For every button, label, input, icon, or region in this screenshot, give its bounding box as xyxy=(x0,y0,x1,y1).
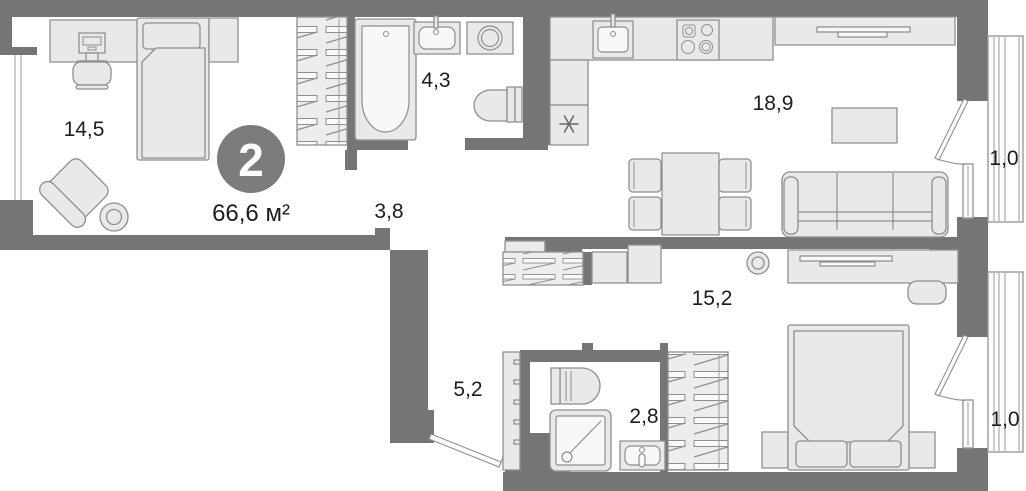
bathroom-sink-icon xyxy=(414,16,460,54)
kitchen-counter xyxy=(550,17,773,145)
desk-chair-icon xyxy=(73,62,111,89)
rooms-count: 2 xyxy=(238,134,264,186)
tv-stand-icon xyxy=(775,17,955,45)
desk-icon xyxy=(50,20,138,64)
toilet-1-icon xyxy=(474,87,522,122)
room-label-shower-room: 2,8 xyxy=(629,405,658,428)
floor-plan-canvas: 14,5 4,3 3,8 18,9 1,0 15,2 5,2 2,8 1,0 2… xyxy=(0,0,1026,491)
wardrobe-3-icon xyxy=(668,352,728,470)
stove-icon xyxy=(677,20,719,60)
shower-icon xyxy=(550,410,611,471)
room-label-kitchen-living: 18,9 xyxy=(753,92,794,115)
wardrobe-1-icon xyxy=(297,17,347,145)
side-table-icon xyxy=(100,203,128,231)
coffee-table-icon xyxy=(832,108,897,143)
dresser-tv-icon xyxy=(788,250,958,304)
room-label-bedroom-2: 15,2 xyxy=(692,287,733,310)
room-label-hallway: 5,2 xyxy=(453,378,482,401)
window-sill-bottom xyxy=(963,400,973,448)
shower-sink-icon xyxy=(620,441,665,470)
kitchen-sink-icon xyxy=(593,14,633,58)
entrance-door xyxy=(429,434,505,467)
single-bed-icon xyxy=(137,18,209,160)
room-label-loggia-bottom: 1,0 xyxy=(990,408,1019,431)
toilet-2-icon xyxy=(551,368,600,404)
cabinets-icon xyxy=(592,245,661,283)
room-label-bathroom-1: 4,3 xyxy=(421,69,450,92)
window-sill-top xyxy=(963,164,973,218)
shoe-cabinet-icon xyxy=(503,352,520,470)
room-label-corridor: 3,8 xyxy=(374,200,403,223)
balcony-door-top xyxy=(935,99,968,164)
nightstand-icon xyxy=(209,18,238,62)
rooms-count-badge: 2 xyxy=(217,125,285,193)
room-label-loggia-top: 1,0 xyxy=(989,147,1018,170)
dining-table-icon xyxy=(662,153,719,235)
bathtub-icon xyxy=(355,19,416,140)
window-left xyxy=(15,55,21,200)
balcony-door-bottom xyxy=(935,335,968,400)
washing-machine-icon xyxy=(467,22,513,54)
sofa-icon xyxy=(782,172,948,237)
fan-icon xyxy=(747,252,769,274)
loggia-top-glazing xyxy=(988,36,1023,222)
double-bed-icon xyxy=(762,325,935,470)
total-area-label: 66,6 м² xyxy=(212,200,290,227)
room-label-bedroom-1: 14,5 xyxy=(64,118,105,141)
floor-plan: 14,5 4,3 3,8 18,9 1,0 15,2 5,2 2,8 1,0 2… xyxy=(0,0,1026,491)
